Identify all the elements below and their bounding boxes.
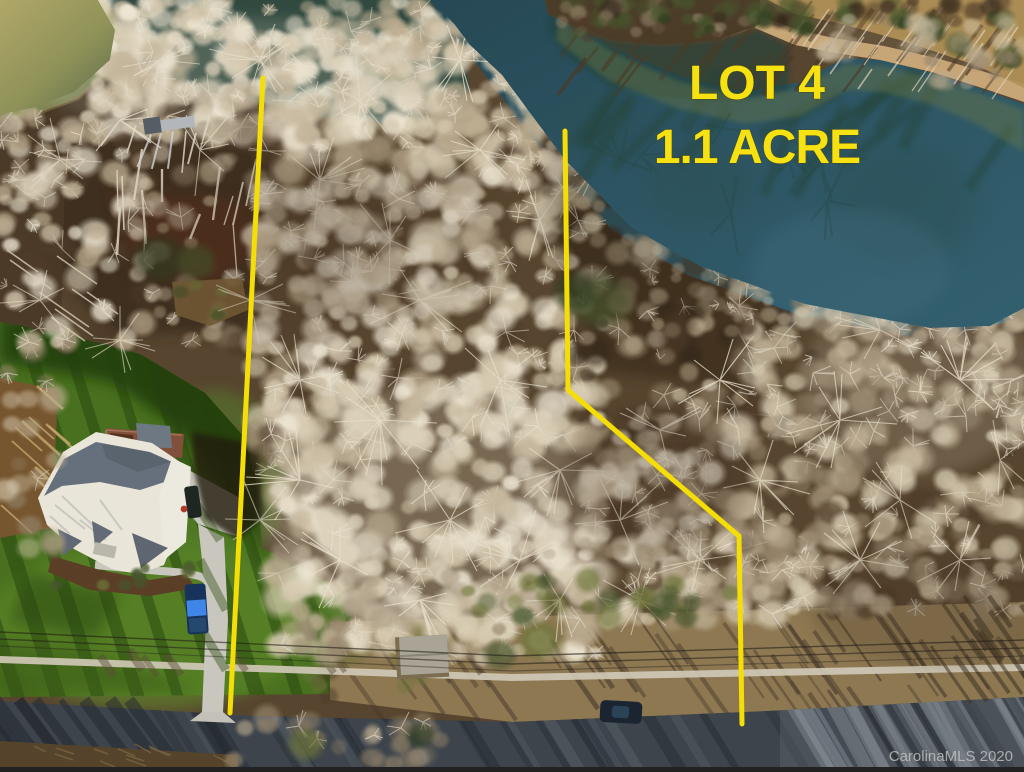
svg-text:1.1 ACRE: 1.1 ACRE [654,121,860,174]
svg-text:LOT 4: LOT 4 [689,57,825,110]
svg-text:CarolinaMLS 2020: CarolinaMLS 2020 [889,748,1013,765]
